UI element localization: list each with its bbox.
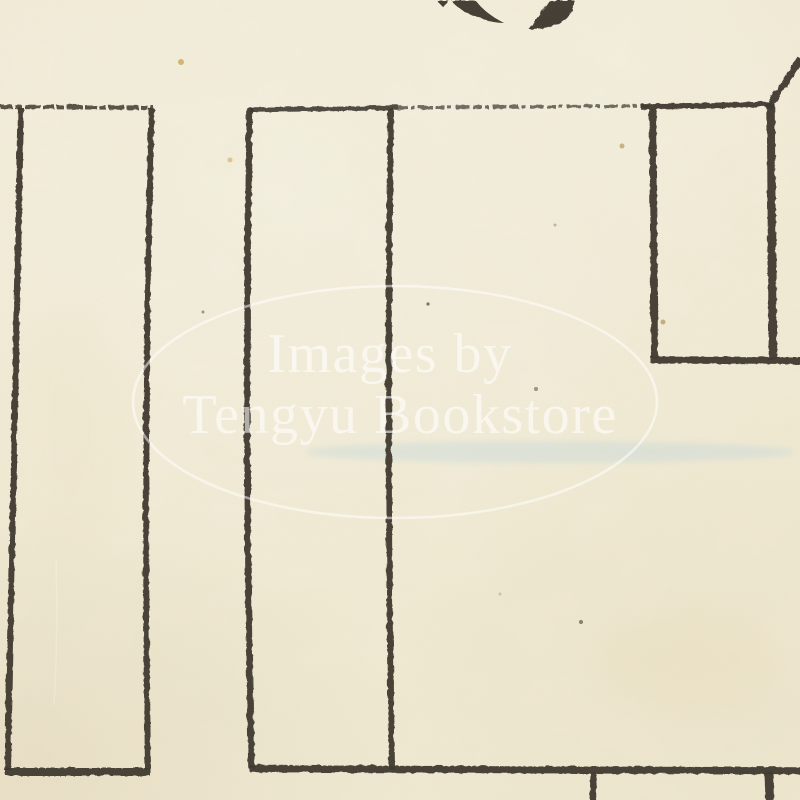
- speck-faint-1: [554, 224, 557, 227]
- speck-yellow-fiber-2: [228, 158, 233, 163]
- speck-yellow-fiber-1: [178, 59, 184, 65]
- warm-patch-bottom-right: [600, 605, 780, 715]
- notch-right-edge: [770, 104, 772, 359]
- top-edge-right-dark: [640, 104, 771, 106]
- speck-dark-4: [579, 620, 583, 624]
- watermark-text-line2: Tengyu Bookstore: [182, 384, 617, 446]
- top-edge-middle-solid: [249, 107, 398, 109]
- map-scan: Images by Tengyu Bookstore: [0, 0, 800, 800]
- map-line-art-canvas: Images by Tengyu Bookstore: [0, 0, 800, 800]
- speck-brown-1: [661, 320, 666, 325]
- lower-stub-right: [768, 772, 769, 800]
- bottom-edge-right: [249, 768, 800, 770]
- speck-faint-2: [499, 593, 502, 596]
- warm-patch-left: [10, 310, 130, 550]
- top-edge-middle-faint: [398, 105, 648, 107]
- speck-dark-2: [202, 311, 205, 314]
- speck-brown-2: [620, 144, 625, 149]
- notch-bottom-edge: [650, 359, 800, 360]
- lower-stub-left: [592, 772, 593, 800]
- watermark-text-line1: Images by: [267, 323, 512, 385]
- notch-left-edge: [652, 108, 654, 357]
- speck-dark-1: [426, 302, 429, 305]
